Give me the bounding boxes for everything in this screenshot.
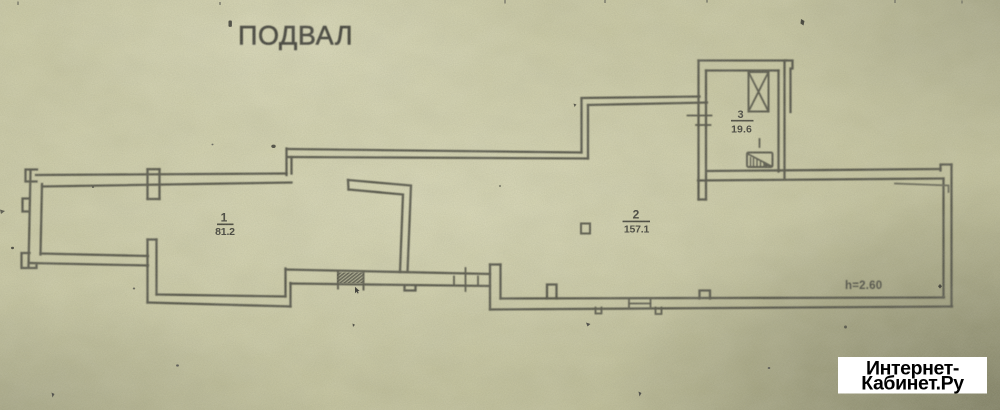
svg-text:Кабинет.Ру: Кабинет.Ру [861, 373, 964, 395]
